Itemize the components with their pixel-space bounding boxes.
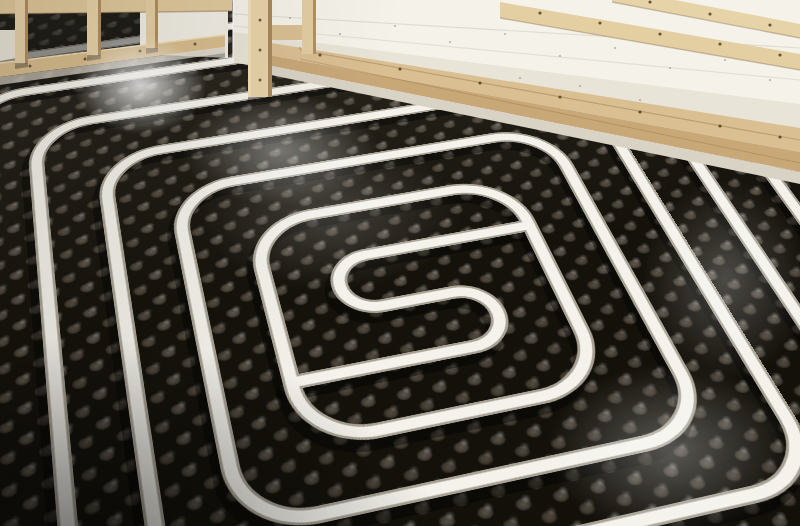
underfloor-heating-photo [0, 0, 800, 526]
stud-shade [25, 0, 28, 64]
lit-wall-patch-left [0, 30, 16, 61]
stud-shade [313, 0, 316, 54]
post-foot-shadow [248, 97, 272, 102]
walls [0, 0, 800, 526]
stud-shade [155, 0, 158, 49]
stud-shade [98, 0, 101, 56]
post-highlight [248, 0, 251, 97]
left-wall-framing [0, 0, 316, 102]
blocking-piece [272, 25, 302, 40]
post-shade [268, 0, 272, 97]
back-wall [233, 0, 800, 184]
